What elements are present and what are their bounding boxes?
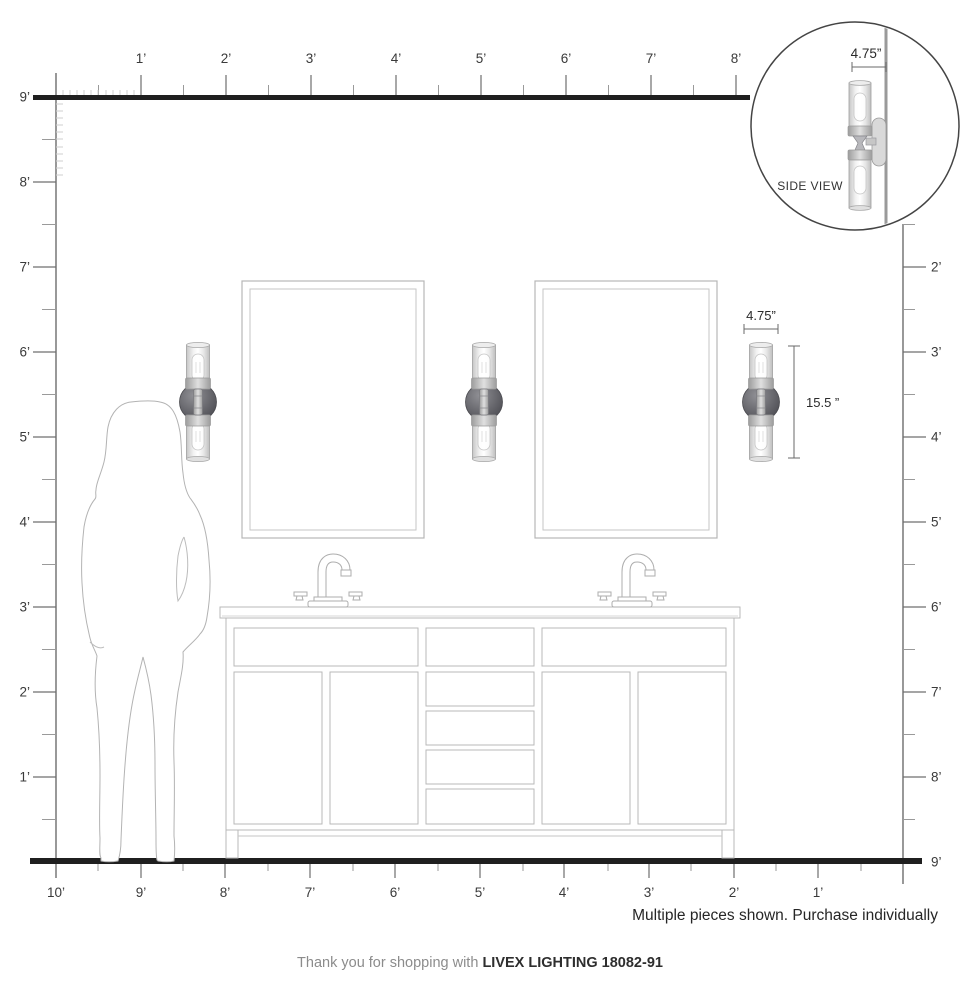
left-ruler-label: 7’ [19,260,30,275]
diagram-canvas: 9’ 8’ 7’ 6’ 5’ 4’ 3’ 2’ 1’ 1’ 2’ 3’ 4’ 5… [0,0,978,990]
right-ruler-label: 7’ [931,685,942,700]
bottom-ruler-label: 2’ [729,885,740,900]
right-ruler-label: 6’ [931,600,942,615]
sconce-front-right [743,342,780,461]
right-ruler-major-ticks [903,267,926,777]
bottom-ruler-label: 9’ [136,885,147,900]
width-dimension-line [744,324,778,334]
mirror-right [535,281,717,538]
cabinet-door [330,672,418,824]
top-ruler: 1’ 2’ 3’ 4’ 5’ 6’ 7’ 8’ [63,51,741,97]
left-ruler-inch-ticks [56,104,63,175]
bottom-ruler: 10’ 9’ 8’ 7’ 6’ 5’ 4’ 3’ 2’ 1’ [47,864,861,900]
cabinet-door [542,672,630,824]
purchase-note: Multiple pieces shown. Purchase individu… [632,907,938,924]
right-ruler-label: 2’ [931,260,942,275]
left-ruler-label: 4’ [19,515,30,530]
faucet-right [598,558,666,607]
inset-dimension-label: 4.75” [851,46,882,61]
side-view-caption: SIDE VIEW [777,179,843,193]
false-drawer-right [542,628,726,666]
bottom-ruler-label: 1’ [813,885,824,900]
sconce-front-left [180,342,217,461]
height-dimension-line [788,346,800,458]
cabinet-door [638,672,726,824]
vanity-leg-right [722,830,734,858]
right-ruler-label: 5’ [931,515,942,530]
drawer [426,750,534,784]
top-ruler-label: 8’ [731,51,742,66]
faucet-left [294,558,362,607]
top-ruler-label: 6’ [561,51,572,66]
right-ruler-label: 8’ [931,770,942,785]
drawer [426,711,534,745]
top-ruler-label: 3’ [306,51,317,66]
cabinet-door [234,672,322,824]
left-ruler: 9’ 8’ 7’ 6’ 5’ 4’ 3’ 2’ 1’ [19,73,63,878]
top-ruler-label: 4’ [391,51,402,66]
left-ruler-label: 6’ [19,345,30,360]
mount-arm [866,138,876,145]
bottom-ruler-major-ticks [56,864,818,878]
product-dimension-diagram: 9’ 8’ 7’ 6’ 5’ 4’ 3’ 2’ 1’ 1’ 2’ 3’ 4’ 5… [0,0,978,990]
bottom-ruler-label: 5’ [475,885,486,900]
vanity-cabinet [220,607,740,858]
left-ruler-minor-ticks [42,140,56,820]
width-dimension-label: 4.75” [746,308,776,323]
bottom-ruler-label: 3’ [644,885,655,900]
false-drawer-left [234,628,418,666]
right-ruler-label: 9’ [931,855,942,870]
left-ruler-label: 8’ [19,175,30,190]
bottom-ruler-label: 7’ [305,885,316,900]
left-ruler-label: 1’ [19,770,30,785]
drawer [426,789,534,824]
false-drawer-center [426,628,534,666]
footer-prefix: Thank you for shopping with [297,955,482,971]
mirror-left [242,281,424,538]
footer-text: Thank you for shopping with LIVEX LIGHTI… [297,955,663,971]
bottom-ruler-label: 4’ [559,885,570,900]
silhouette-outline [82,401,210,862]
bottom-ruler-label: 8’ [220,885,231,900]
bottom-ruler-label: 6’ [390,885,401,900]
top-ruler-label: 2’ [221,51,232,66]
footer-brand: LIVEX LIGHTING 18082-91 [482,955,663,971]
right-ruler-label: 4’ [931,430,942,445]
left-ruler-label: 9’ [19,90,30,105]
drawer [426,672,534,706]
left-ruler-label: 2’ [19,685,30,700]
bottom-ruler-label: 10’ [47,885,65,900]
top-ruler-label: 1’ [136,51,147,66]
right-ruler: 2’ 3’ 4’ 5’ 6’ 7’ 8’ 9’ [903,224,942,884]
top-ruler-label: 7’ [646,51,657,66]
sconce-front-center [466,342,503,461]
height-dimension-label: 15.5 ” [806,395,839,410]
right-ruler-label: 3’ [931,345,942,360]
vanity-leg-left [226,830,238,858]
human-silhouette [82,401,210,862]
left-ruler-label: 3’ [19,600,30,615]
ceiling-line [33,95,750,100]
top-ruler-label: 5’ [476,51,487,66]
side-view-inset: 4.75” SIDE VIEW [751,20,959,232]
left-ruler-label: 5’ [19,430,30,445]
